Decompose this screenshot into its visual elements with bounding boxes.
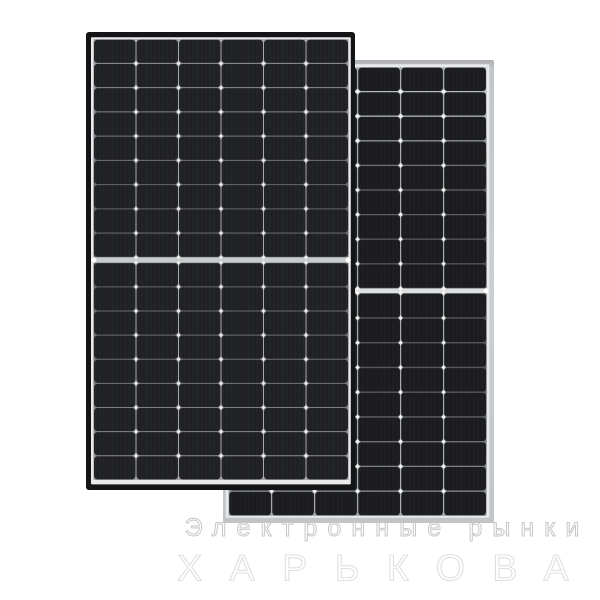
- svg-text:Электронные рынки: Электронные рынки: [185, 514, 590, 542]
- svg-text:ХАРЬКОВА: ХАРЬКОВА: [177, 547, 596, 589]
